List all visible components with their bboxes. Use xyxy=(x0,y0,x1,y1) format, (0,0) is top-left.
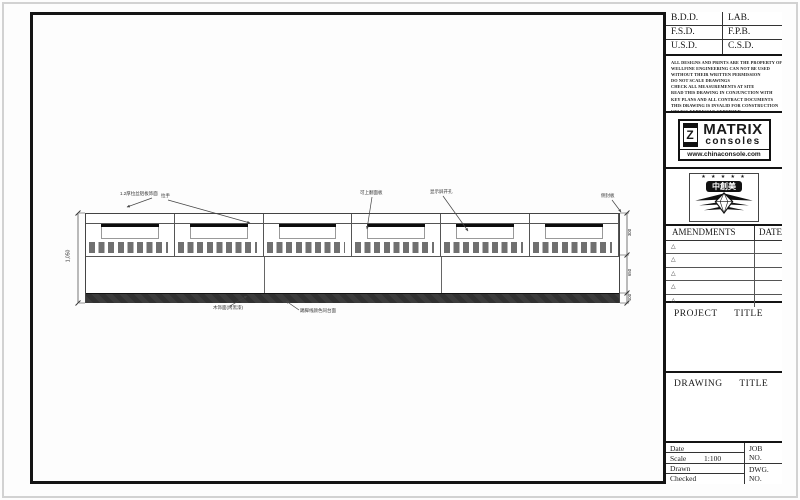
amendment-row: △ xyxy=(666,281,782,294)
company-logo-section: Z MATRIX consoles www.chinaconsole.com xyxy=(666,113,782,169)
console-bay-2 xyxy=(175,214,264,256)
matrix-logo: Z MATRIX consoles www.chinaconsole.com xyxy=(678,119,771,161)
job-number-cell: JOB NO. xyxy=(745,443,782,464)
scale-label: Scale xyxy=(670,454,686,463)
checked-label: Checked xyxy=(670,474,696,483)
project-title-label: PROJECT TITLE xyxy=(666,303,782,319)
company-emblem-section: ★ ★ ★ ★ ★ 中創美 xyxy=(666,169,782,226)
emblem-banner-text: 中創美 xyxy=(706,181,742,192)
monitor-slot xyxy=(456,223,514,239)
amendment-row: △ xyxy=(666,268,782,281)
cabinet-joint xyxy=(264,257,265,294)
matrix-logo-icon: Z xyxy=(683,123,698,147)
monitor-slot xyxy=(367,223,425,239)
console-bay-3 xyxy=(264,214,353,256)
scale-value: 1:100 xyxy=(704,454,721,463)
annotation-plinth-finish: 木饰面(烤黑漆) xyxy=(213,305,243,311)
console-elevation xyxy=(85,213,620,303)
company-website: www.chinaconsole.com xyxy=(680,149,769,159)
annotation-kick-color: 踢脚线颜色同台面 xyxy=(300,308,336,314)
disclaimer-notes: ALL DESIGNS AND PRINTS ARE THE PROPERTY … xyxy=(666,56,782,113)
matrix-logo-name: MATRIX xyxy=(701,123,766,137)
amendments-title: AMENDMENTS xyxy=(666,226,755,240)
console-lower-cabinets xyxy=(86,256,619,294)
console-bay-6 xyxy=(530,214,619,256)
dimension-right-plinth: 100 xyxy=(627,294,632,301)
scale-row: Scale 1:100 xyxy=(666,453,744,463)
disclaimer-line: KEY PLANS AND ALL CONTRACT DOCUMENTS xyxy=(671,97,779,103)
console-bay-5 xyxy=(441,214,530,256)
annotation-finish-panel: 1.2厚拉丝铝板饰面 xyxy=(120,191,158,197)
matrix-icon-letter: Z xyxy=(684,128,697,142)
annotation-side-panel: 侧封板 xyxy=(601,193,615,199)
date-row: Date xyxy=(666,443,744,453)
vent-slats xyxy=(533,242,612,253)
annotation-flip-panel: 可上翻面板 xyxy=(360,190,383,196)
project-title-section: PROJECT TITLE xyxy=(666,303,782,373)
company-emblem: ★ ★ ★ ★ ★ 中創美 xyxy=(689,173,759,222)
drawing-sheet: 1.2厚拉丝铝板饰面 拉手 可上翻面板 显示屏开孔 侧封板 木饰面(烤黑漆) 踢… xyxy=(0,0,800,500)
date-label: Date xyxy=(670,444,684,453)
vent-slats xyxy=(267,242,346,253)
revision-triangle-icon: △ xyxy=(671,284,676,290)
amendment-row: △ xyxy=(666,254,782,267)
amendment-row: △ xyxy=(666,241,782,254)
annotation-handle: 拉手 xyxy=(161,193,170,199)
monitor-slot xyxy=(190,223,248,239)
signature-grid: B.D.D. LAB. F.S.D. F.P.B. U.S.D. C.S.D. xyxy=(666,12,782,56)
monitor-slot xyxy=(279,223,337,239)
disclaimer-line: READ THIS DRAWING IN CONJUNCTION WITH xyxy=(671,90,779,96)
title-block: B.D.D. LAB. F.S.D. F.P.B. U.S.D. C.S.D. … xyxy=(663,12,782,484)
disclaimer-line: THIS DRAWING IS INVALID FOR CONSTRUCTION xyxy=(671,103,779,109)
drawing-info-section: Date Scale 1:100 Drawn Checked JOB NO. D… xyxy=(666,443,782,484)
console-top-band-line xyxy=(86,223,619,224)
revision-triangle-icon: △ xyxy=(671,257,676,263)
sig-cell-usd: U.S.D. xyxy=(666,40,723,54)
monitor-slot xyxy=(545,223,603,239)
vent-slats xyxy=(89,242,168,253)
sig-cell-bdd: B.D.D. xyxy=(666,12,723,26)
console-upper-band xyxy=(86,214,619,256)
emblem-wings-icon xyxy=(692,192,756,215)
console-bay-1 xyxy=(86,214,175,256)
annotation-display-cutout: 显示屏开孔 xyxy=(430,189,453,195)
amendments-header: AMENDMENTS DATE xyxy=(666,226,782,241)
console-plinth xyxy=(86,293,619,303)
sig-cell-csd: C.S.D. xyxy=(723,40,782,54)
vent-slats xyxy=(355,242,434,253)
vent-slats xyxy=(444,242,523,253)
dimension-right-middle: 650 xyxy=(627,269,632,276)
dimension-total-height: 1,050 xyxy=(65,250,71,263)
vent-slats xyxy=(178,242,257,253)
drawing-title-section: DRAWING TITLE xyxy=(666,373,782,443)
sig-cell-lab: LAB. xyxy=(723,12,782,26)
revision-triangle-icon: △ xyxy=(671,244,676,250)
cabinet-joint xyxy=(441,257,442,294)
dimension-right-upper: 300 xyxy=(627,229,632,236)
console-bay-4 xyxy=(352,214,441,256)
dwg-number-cell: DWG. NO. xyxy=(745,464,782,485)
revision-triangle-icon: △ xyxy=(671,271,676,277)
amendments-date-title: DATE xyxy=(755,226,782,240)
drawing-title-label: DRAWING TITLE xyxy=(666,373,782,389)
matrix-logo-subtitle: consoles xyxy=(701,137,766,147)
sig-cell-fpb: F.P.B. xyxy=(723,26,782,40)
sig-cell-fsd: F.S.D. xyxy=(666,26,723,40)
amendments-section: AMENDMENTS DATE △ △ △ △ △ xyxy=(666,226,782,303)
drawn-label: Drawn xyxy=(670,464,690,473)
monitor-slot xyxy=(101,223,159,239)
checked-row: Checked xyxy=(666,474,744,484)
drawn-row: Drawn xyxy=(666,464,744,474)
